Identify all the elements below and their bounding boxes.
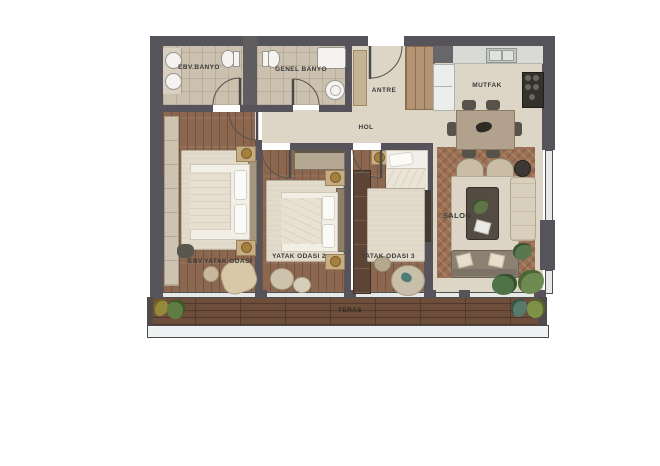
wardrobe: [294, 150, 345, 170]
burner: [529, 94, 535, 100]
dining-chair: [462, 100, 476, 110]
pouf: [177, 244, 194, 258]
fridge-divider: [434, 86, 452, 87]
pier-south-3: [424, 290, 436, 298]
washing-machine-drum: [330, 85, 341, 96]
terrace-railing: [147, 325, 549, 338]
wall-mbr-post: [255, 105, 262, 112]
burner: [525, 84, 531, 90]
label-mutfak: MUTFAK: [472, 82, 501, 89]
wall-top-right: [404, 36, 555, 46]
wall-hol-br2: [290, 143, 353, 150]
fridge-icon: [433, 64, 455, 111]
lamp-icon: [330, 172, 341, 183]
wall-br2-br3: [344, 150, 351, 293]
pier-south-4: [459, 290, 470, 298]
wall-right-column: [540, 220, 555, 270]
label-ebv-banyo: EBV.BANYO: [178, 64, 220, 71]
label-genel-banyo: GENEL BANYO: [275, 66, 327, 73]
label-yatak-3: YATAK ODASI 3: [361, 253, 415, 260]
wall-bath-south-1: [163, 105, 213, 112]
label-antre: ANTRE: [372, 87, 396, 94]
label-salon: SALON: [443, 211, 471, 220]
window-right-1: [545, 150, 553, 222]
antre-closet: [405, 46, 435, 110]
pouf: [293, 277, 311, 293]
pillow: [234, 204, 247, 234]
bed-blanket: [281, 198, 322, 244]
burner: [533, 84, 539, 90]
daybed: [510, 177, 536, 241]
window-right-2: [545, 270, 553, 294]
lamp-icon: [374, 152, 385, 163]
pier-south-1: [255, 290, 267, 298]
toilet-tank: [233, 51, 240, 67]
kitchen-sink-basin: [502, 50, 514, 61]
floor-plan: EBV.BANYO GENEL BANYO ANTRE MUTFAK HOL E…: [0, 0, 660, 466]
wall-top-left: [150, 36, 368, 46]
label-ebv-yatak: EBV.YATAK ODASI: [188, 258, 252, 265]
floor-lamp-icon: [514, 160, 531, 177]
lamp-icon: [241, 242, 252, 253]
lamp-icon: [330, 256, 341, 267]
pillow: [234, 170, 247, 200]
antre-cabinet: [353, 50, 367, 106]
wardrobe: [164, 116, 179, 286]
toilet-tank: [262, 51, 269, 67]
lamp-icon: [241, 148, 252, 159]
label-hol: HOL: [359, 124, 374, 131]
wall-bath-south-2: [240, 105, 293, 112]
room-hol-floor: [262, 110, 352, 143]
bedroom-rug: [367, 188, 425, 262]
kitchen-shaft: [433, 46, 453, 63]
pouf: [270, 268, 294, 290]
kitchen-sink-basin: [489, 50, 502, 61]
wall-banyo-antre: [345, 36, 352, 112]
pillow: [322, 196, 335, 220]
bed-blanket: [190, 172, 231, 230]
sink-icon: [165, 73, 182, 90]
cushion: [488, 253, 505, 269]
pillow: [322, 224, 335, 248]
terrace-edge-left: [147, 297, 153, 325]
burner: [533, 75, 539, 81]
dining-chair: [486, 100, 500, 110]
burner: [525, 75, 531, 81]
label-yatak-2: YATAK ODASI 2: [272, 253, 326, 260]
wall-shaft-baths: [243, 36, 257, 106]
label-teras: TERAS: [338, 307, 362, 314]
console: [425, 190, 431, 242]
side-table: [203, 266, 219, 282]
